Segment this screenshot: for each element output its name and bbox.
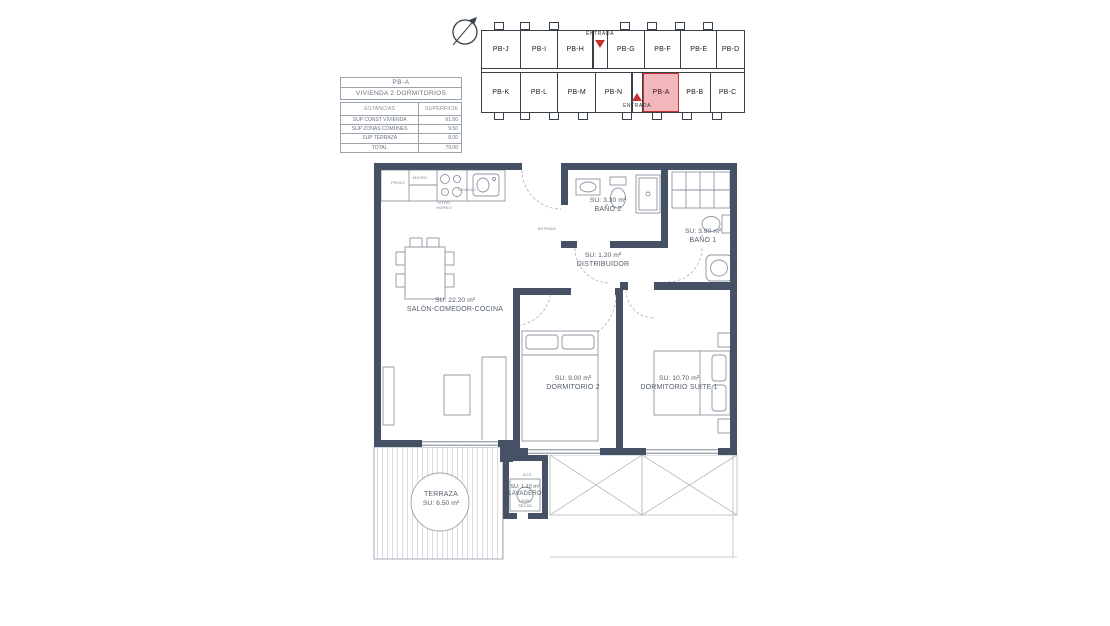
facade-notch [494,112,504,120]
north-arrow-icon [444,10,486,52]
facade-notch [549,22,559,30]
room-label-terraza: TERRAZA SU: 6.50 m² [398,490,484,509]
sideboard [383,367,394,425]
row-value: 8.00 [419,134,461,142]
adjacent-structure [550,455,737,557]
facade-notch [520,112,530,120]
plan-entrada-label: ENTRADA [532,227,562,231]
entrance-arrow-up-icon [632,93,642,101]
facade-notch [675,22,685,30]
facade-notch [703,22,713,30]
row-label: SUP TERRAZA [341,134,419,142]
row-label: SUP ZONAS COMUNES [341,125,419,133]
facade-notch [622,112,632,120]
row-value: 61.50 [419,116,461,124]
row-label: TOTAL [341,144,419,152]
unit-cell: PB-D [717,31,744,68]
nightstand [718,419,732,433]
room-label-lavadero: SU: 1.10 m² LAVADERO LAVAD SECAD [497,484,553,508]
room-label-bano2: SU: 3.30 m² BAÑO 2 [561,196,655,215]
dryer-label: SECAD [497,503,553,508]
row-value: 9.50 [419,125,461,133]
unit-cell: PB-C [711,73,744,112]
room-label-distribuidor: SU: 1.20 m² DISTRIBUIDOR [551,251,655,270]
table-row: SUP TERRAZA 8.00 [340,134,462,143]
facade-notch [682,112,692,120]
floorplan-sheet: { "colors": { "wall": "#475166", "accent… [0,0,1110,626]
facade-notch [549,112,559,120]
unit-cell: PB-L [521,73,559,112]
hob-burner [441,175,450,184]
room-area: SU: 3.30 m² [561,196,655,205]
table-row: TOTAL 79.00 [340,144,462,153]
entrance-arrow-down-icon [595,40,605,48]
facade-notch [620,22,630,30]
room-area: SU: 1.10 m² [497,484,553,491]
room-name: DISTRIBUIDOR [551,260,655,269]
coffee-table [444,375,470,415]
facade-notch [652,112,662,120]
room-area: SU: 22.20 m² [375,296,535,305]
col-superficie: SUPERFICIE [419,103,461,115]
hob-label: VITRO HORNO [429,201,459,211]
furniture-layer [381,170,732,531]
dishwasher-label: LAVAVAJ [450,188,484,193]
bath1-fixtures [702,215,732,281]
table-row: SUP CONST VIVIENDA 61.50 [340,116,462,125]
room-name: BAÑO 2 [561,205,655,214]
facade-notch [520,22,530,30]
room-name: BAÑO 1 [656,236,750,245]
unit-cell: PB-E [681,31,717,68]
oven-label: HORNO [436,205,452,210]
toilet-tank [610,177,626,185]
facade-notch [712,112,722,120]
facade-notch [578,112,588,120]
acs-label: ACS [518,473,536,478]
room-label-suite1: SU: 10.70 m² DORMITORIO SUITE 1 [610,374,748,393]
microwave-label: MICRO [407,176,433,181]
unit-cell: PB-K [482,73,521,112]
room-area: SU: 10.70 m² [610,374,748,383]
room-name: LAVADERO [497,491,553,499]
table-row: SUP ZONAS COMUNES 9.50 [340,125,462,134]
row-value: 79.00 [419,144,461,152]
nightstand [718,333,732,347]
room-name: SALÓN-COMEDOR-COCINA [375,305,535,314]
unit-summary-table: PB-A VIVIENDA 2 DORMITORIOS ESTANCIAS SU… [340,77,462,153]
room-area: SU: 3.90 m² [656,227,750,236]
sofa [482,357,506,443]
room-name: DORMITORIO SUITE 1 [610,383,748,392]
unit-cell: PB-F [645,31,682,68]
col-estancias: ESTANCIAS [341,103,419,115]
wardrobe [672,172,730,208]
room-name: TERRAZA [398,490,484,499]
dwelling-type: VIVIENDA 2 DORMITORIOS [340,88,462,100]
unit-cell: PB-M [558,73,596,112]
table-header-row: ESTANCIAS SUPERFICIE [340,102,462,116]
fridge-label: FRIGO [385,181,411,186]
building-key-plan: PB-J PB-I PB-H PB-G PB-F PB-E PB-D PB-K … [481,22,745,122]
room-area: SU: 6.50 m² [398,499,484,508]
room-area: SU: 1.20 m² [551,251,655,260]
facade-notch [647,22,657,30]
entrada-bottom-label: ENTRADA [609,103,665,109]
room-label-salon: SU: 22.20 m² SALÓN-COMEDOR-COCINA [375,296,535,315]
room-label-bano1: SU: 3.90 m² BAÑO 1 [656,227,750,246]
entrada-top-label: ENTRADA [572,31,628,37]
unit-cell: PB-J [482,31,521,68]
unit-cell: PB-I [521,31,559,68]
row-label: SUP CONST VIVIENDA [341,116,419,124]
unit-cell: PB-B [679,73,711,112]
dining-table [396,238,454,299]
unit-code: PB-A [340,77,462,88]
building-outline: PB-J PB-I PB-H PB-G PB-F PB-E PB-D PB-K … [481,30,745,113]
facade-notch [494,22,504,30]
